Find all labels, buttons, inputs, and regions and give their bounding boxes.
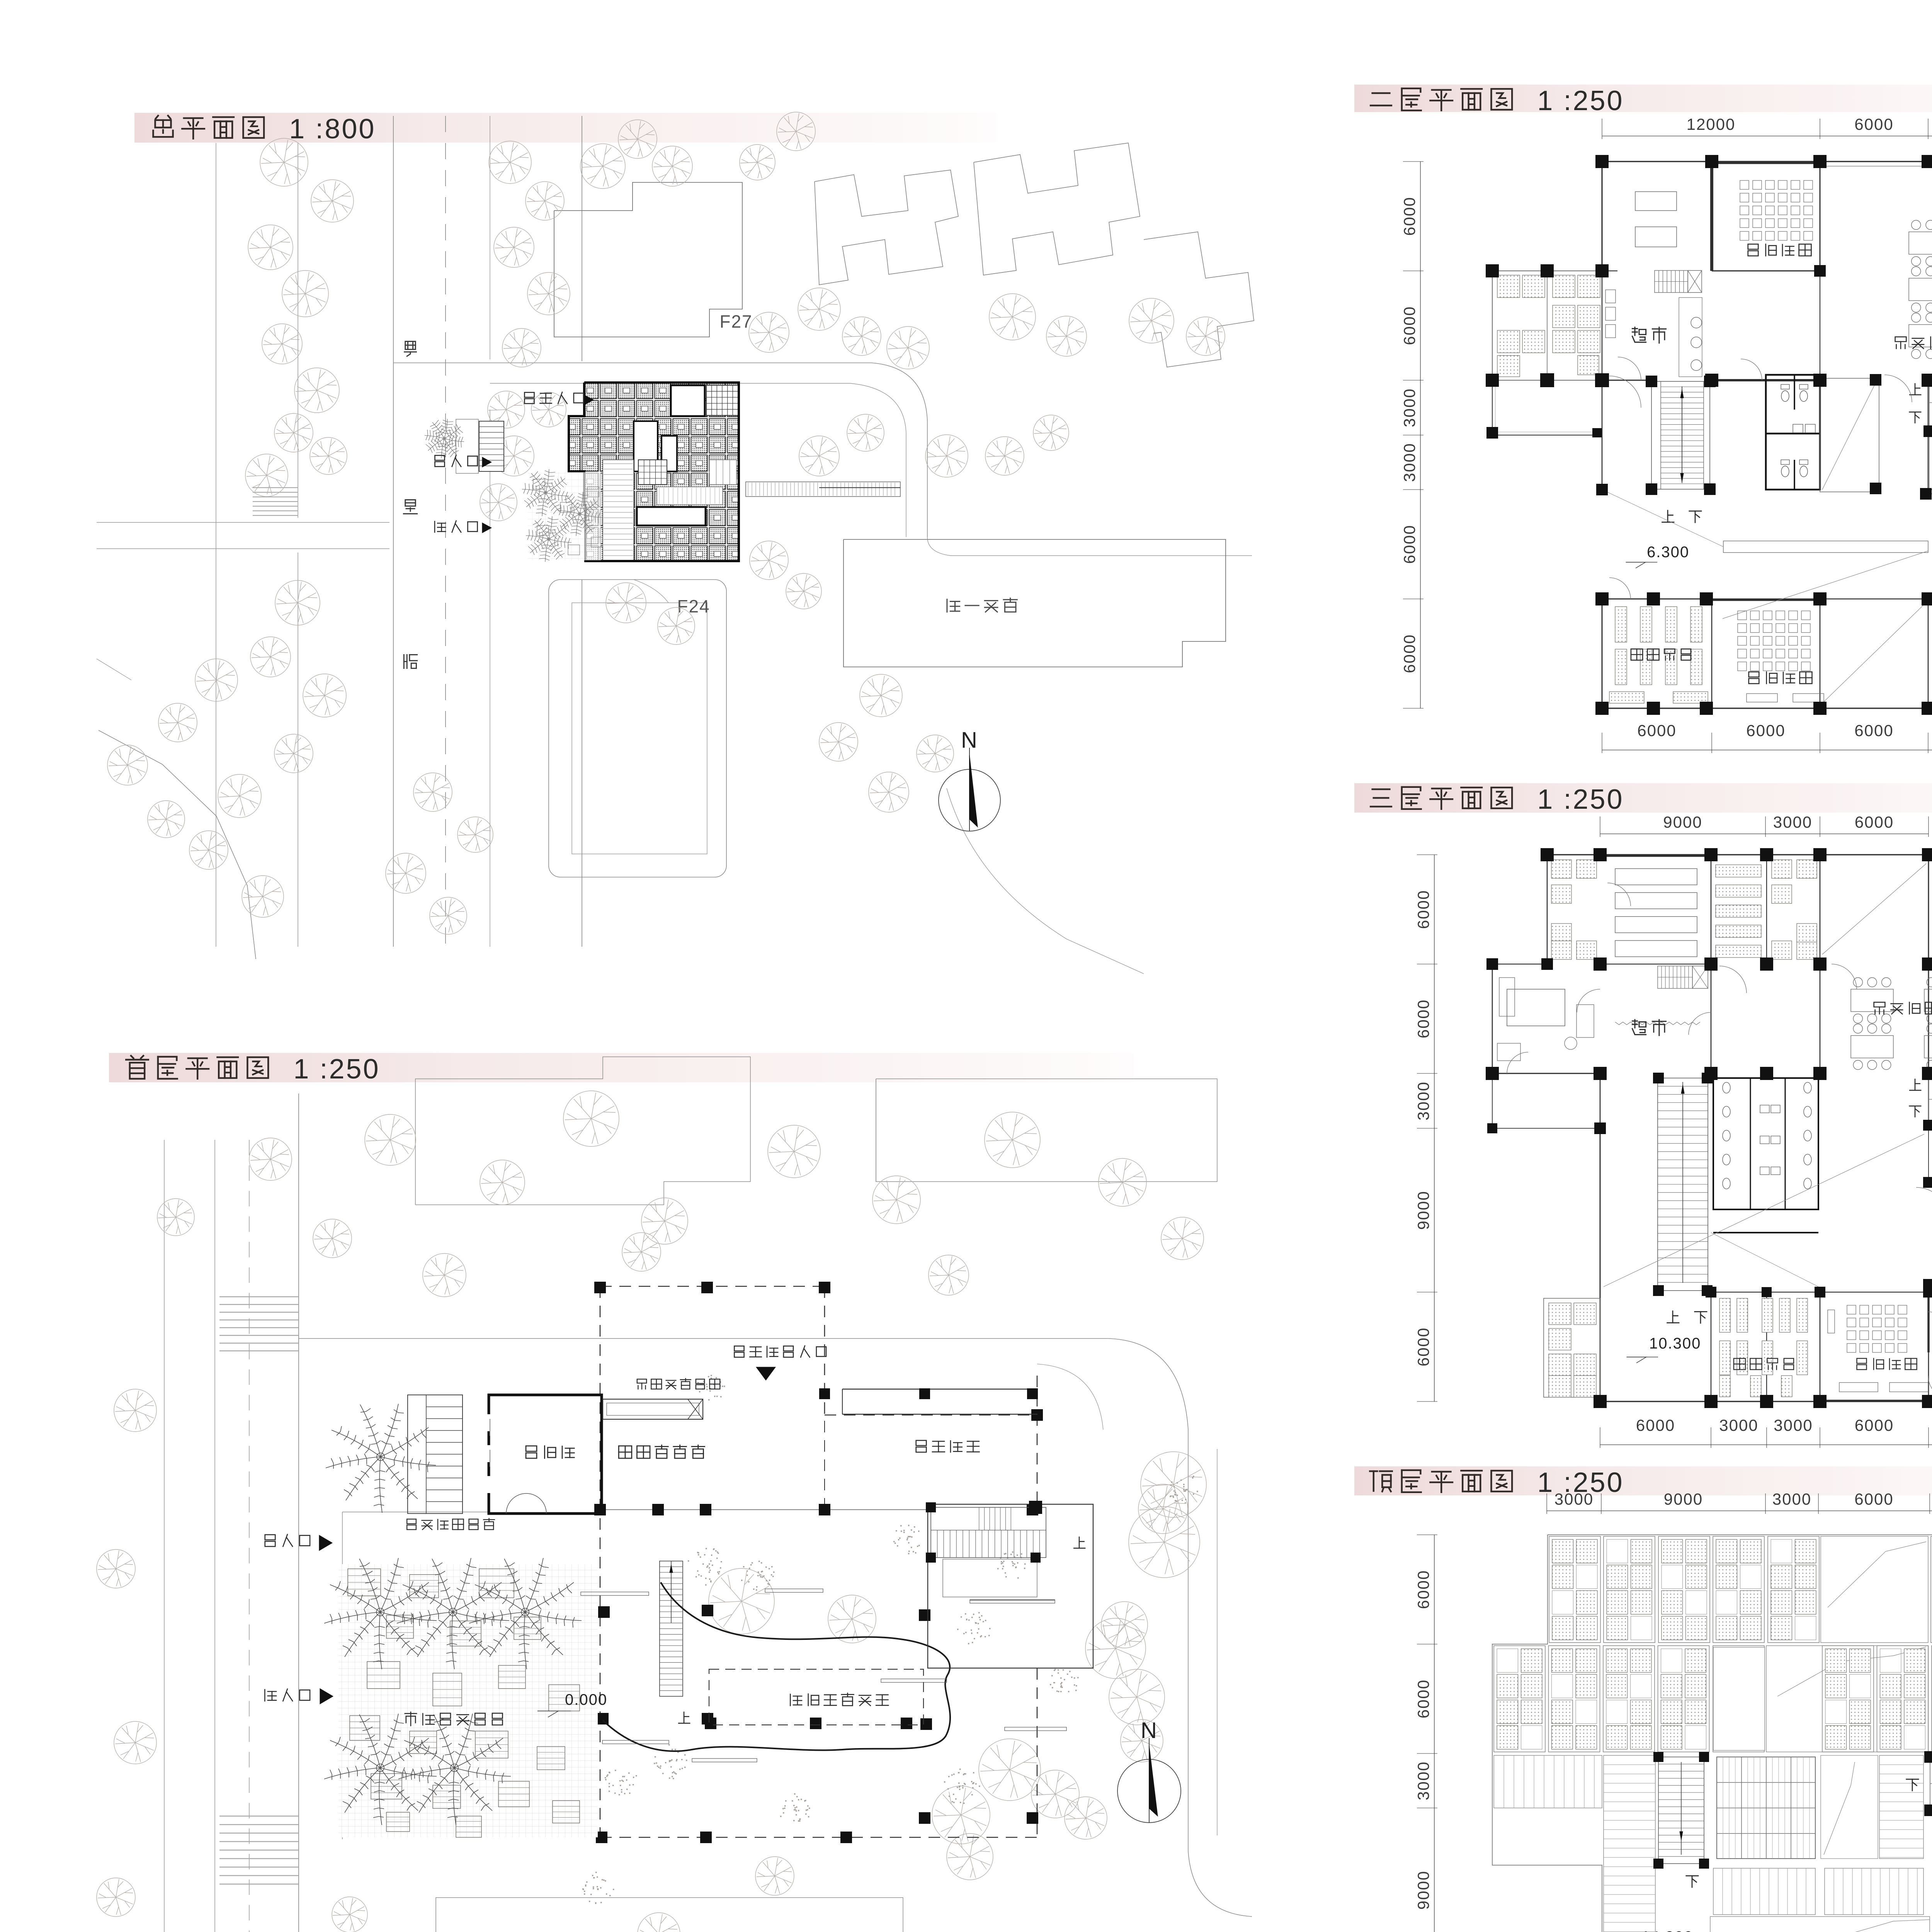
svg-text:3000: 3000 (1414, 1081, 1432, 1120)
svg-text:6000: 6000 (1746, 721, 1785, 740)
svg-text:6000: 6000 (1637, 721, 1676, 740)
svg-text:6000: 6000 (1414, 1327, 1432, 1366)
svg-text:6000: 6000 (1400, 197, 1418, 236)
svg-text:N: N (961, 728, 978, 753)
svg-text:1 :250: 1 :250 (1537, 85, 1624, 116)
svg-text:3000: 3000 (1773, 813, 1812, 831)
svg-text:9000: 9000 (1414, 1871, 1432, 1910)
svg-text:12000: 12000 (1687, 115, 1736, 133)
svg-text:F27: F27 (719, 311, 752, 332)
svg-text:F24: F24 (677, 596, 710, 616)
svg-text:3000: 3000 (1400, 388, 1418, 427)
svg-text:1 :250: 1 :250 (1537, 784, 1624, 815)
svg-text:6000: 6000 (1414, 999, 1432, 1038)
svg-text:6000: 6000 (1414, 1679, 1432, 1718)
svg-text:6000: 6000 (1855, 813, 1894, 831)
svg-text:6000: 6000 (1636, 1416, 1675, 1434)
svg-text:N: N (1141, 1718, 1158, 1743)
svg-text:1 :800: 1 :800 (289, 114, 376, 145)
svg-text:6000: 6000 (1414, 1570, 1432, 1609)
svg-text:3000: 3000 (1400, 443, 1418, 482)
svg-text:6000: 6000 (1400, 306, 1418, 345)
svg-text:14.300: 14.300 (1641, 1929, 1693, 1932)
svg-text:9000: 9000 (1414, 1190, 1432, 1230)
svg-text:6000: 6000 (1854, 721, 1893, 740)
svg-text:10.300: 10.300 (1649, 1335, 1701, 1352)
svg-text:9000: 9000 (1663, 813, 1702, 831)
svg-text:3000: 3000 (1554, 1490, 1594, 1508)
svg-text:3000: 3000 (1772, 1490, 1811, 1508)
svg-text:1 :250: 1 :250 (293, 1054, 380, 1085)
svg-text:6000: 6000 (1854, 115, 1893, 133)
svg-text:0.000: 0.000 (565, 1691, 607, 1708)
svg-text:6000: 6000 (1414, 890, 1432, 929)
svg-text:6000: 6000 (1855, 1416, 1894, 1434)
svg-text:9000: 9000 (1664, 1490, 1703, 1508)
svg-text:6000: 6000 (1854, 1490, 1893, 1508)
svg-text:6000: 6000 (1400, 525, 1418, 564)
svg-text:3000: 3000 (1414, 1761, 1432, 1800)
svg-text:3000: 3000 (1774, 1416, 1813, 1434)
svg-text:3000: 3000 (1719, 1416, 1758, 1434)
svg-text:6000: 6000 (1400, 634, 1418, 673)
svg-text:6.300: 6.300 (1647, 544, 1689, 561)
